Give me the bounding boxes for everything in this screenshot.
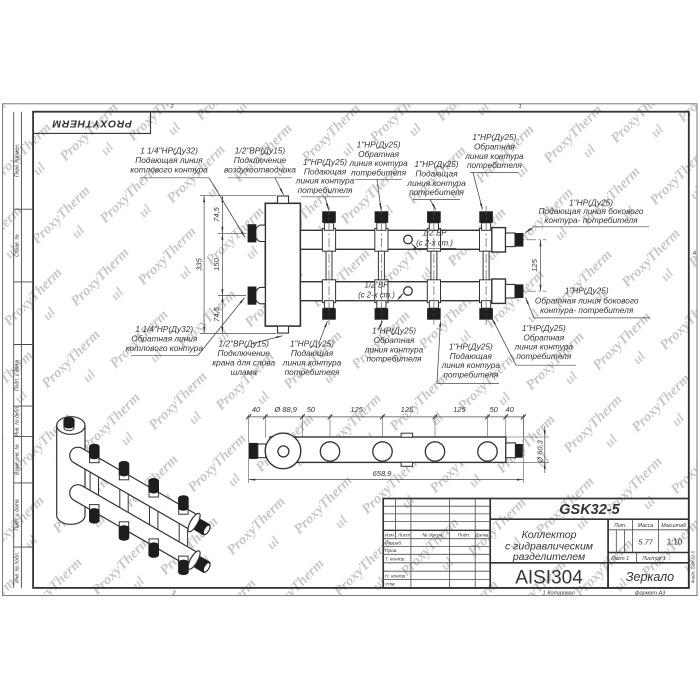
svg-text:потребителя: потребителя bbox=[298, 185, 353, 195]
svg-text:Коллектор: Коллектор bbox=[522, 529, 577, 541]
svg-text:А: А bbox=[692, 251, 697, 257]
svg-text:335: 335 bbox=[195, 257, 204, 270]
svg-text:658,9: 658,9 bbox=[373, 469, 393, 478]
svg-text:50: 50 bbox=[490, 405, 499, 414]
svg-text:125: 125 bbox=[453, 405, 466, 414]
svg-text:Обратная линия бокового: Обратная линия бокового bbox=[535, 295, 639, 305]
svg-text:Взам. инв. №: Взам. инв. № bbox=[15, 444, 21, 476]
svg-text:формат А3: формат А3 bbox=[635, 591, 666, 597]
svg-text:1/2"ВР: 1/2"ВР bbox=[422, 228, 447, 237]
svg-text:Копировал: Копировал bbox=[547, 591, 574, 597]
svg-text:Утв.: Утв. bbox=[385, 581, 396, 587]
svg-text:(с 2-х ст.): (с 2-х ст.) bbox=[416, 238, 453, 247]
svg-text:Инв. № подл.: Инв. № подл. bbox=[15, 552, 21, 583]
svg-text:№ докум.: № докум. bbox=[422, 532, 443, 538]
svg-text:40: 40 bbox=[506, 405, 515, 414]
svg-text:Разраб.: Разраб. bbox=[385, 540, 402, 546]
svg-text:Н. контр.: Н. контр. bbox=[385, 573, 407, 579]
svg-text:2: 2 bbox=[171, 591, 175, 597]
svg-text:Масштаб: Масштаб bbox=[661, 523, 687, 529]
svg-text:Подключение: Подключение bbox=[234, 155, 287, 165]
svg-text:GSK32-5: GSK32-5 bbox=[559, 502, 620, 518]
svg-text:потребителя: потребителя bbox=[443, 369, 498, 379]
svg-text:потребителя: потребителя bbox=[467, 160, 522, 170]
svg-text:Листов 1: Листов 1 bbox=[641, 556, 666, 562]
svg-text:40: 40 bbox=[252, 405, 261, 414]
svg-text:Зеркало: Зеркало bbox=[626, 570, 674, 584]
svg-text:1 1/4"НР(Ду32): 1 1/4"НР(Ду32) bbox=[140, 146, 198, 156]
svg-text:Подп. и дата: Подп. и дата bbox=[15, 359, 21, 391]
svg-text:1: 1 bbox=[542, 591, 545, 597]
svg-text:Подающая линия: Подающая линия bbox=[135, 155, 203, 165]
svg-text:150: 150 bbox=[212, 257, 221, 270]
svg-text:Лист: Лист bbox=[397, 532, 410, 538]
svg-text:Лист 1: Лист 1 bbox=[610, 556, 629, 562]
svg-text:Дата: Дата bbox=[474, 532, 488, 538]
svg-text:шлама: шлама bbox=[230, 367, 257, 377]
svg-text:потребителя: потребителя bbox=[285, 367, 340, 377]
svg-text:1/2"ВР(Ду15): 1/2"ВР(Ду15) bbox=[235, 146, 286, 156]
svg-text:Подп.: Подп. bbox=[458, 532, 471, 538]
svg-text:Изм.: Изм. bbox=[385, 532, 395, 538]
svg-text:воздухоотводчика: воздухоотводчика bbox=[224, 165, 296, 175]
svg-text:Ø 60,3: Ø 60,3 bbox=[536, 439, 545, 463]
svg-text:74,5: 74,5 bbox=[212, 206, 221, 221]
svg-text:1: 1 bbox=[518, 104, 521, 110]
svg-text:1/2"ВР: 1/2"ВР bbox=[364, 281, 389, 290]
svg-text:потребителя: потребителя bbox=[409, 187, 464, 197]
svg-text:50: 50 bbox=[307, 405, 316, 414]
svg-text:котлового контура: котлового контура bbox=[126, 343, 204, 353]
svg-text:5.77: 5.77 bbox=[638, 538, 653, 547]
svg-text:потребителя: потребителя bbox=[367, 354, 422, 364]
svg-text:Подп. и дата: Подп. и дата bbox=[15, 499, 21, 531]
svg-text:125: 125 bbox=[401, 405, 414, 414]
svg-text:PROXYTHERM: PROXYTHERM bbox=[52, 118, 132, 130]
svg-text:Справ. №: Справ. № bbox=[15, 234, 21, 257]
svg-text:125: 125 bbox=[530, 258, 539, 271]
svg-text:контура- потребителя: контура- потребителя bbox=[544, 215, 638, 225]
svg-text:Инв. № дубл.: Инв. № дубл. bbox=[15, 406, 21, 437]
svg-text:потребителя: потребителя bbox=[516, 351, 571, 361]
svg-text:Пров.: Пров. bbox=[385, 548, 398, 554]
svg-text:разделителем: разделителем bbox=[512, 551, 585, 563]
svg-text:Перв. примен.: Перв. примен. bbox=[15, 144, 21, 177]
svg-text:котлового контура: котлового контура bbox=[130, 165, 208, 175]
svg-text:2: 2 bbox=[169, 104, 173, 110]
svg-text:74,5: 74,5 bbox=[212, 306, 221, 321]
svg-text:1 1/4"НР(Ду32): 1 1/4"НР(Ду32) bbox=[135, 324, 193, 334]
svg-text:Обратная линия: Обратная линия bbox=[131, 334, 198, 344]
svg-text:1:10: 1:10 bbox=[667, 538, 683, 547]
svg-text:Ø 88,9: Ø 88,9 bbox=[273, 405, 297, 414]
svg-text:контура- потребителя: контура- потребителя bbox=[540, 305, 634, 315]
svg-text:Лит.: Лит. bbox=[613, 523, 626, 529]
svg-text:Масса: Масса bbox=[638, 523, 654, 529]
svg-text:Файл. GSK32-5: Файл. GSK32-5 bbox=[690, 550, 696, 583]
svg-text:(с 2-х ст.): (с 2-х ст.) bbox=[358, 291, 395, 300]
svg-text:Т. контр.: Т. контр. bbox=[385, 556, 406, 562]
svg-text:AISI304: AISI304 bbox=[515, 568, 583, 589]
svg-text:125: 125 bbox=[350, 405, 363, 414]
svg-text:потребителя: потребителя bbox=[351, 168, 406, 178]
svg-text:1"НР(Ду25): 1"НР(Ду25) bbox=[565, 286, 609, 296]
